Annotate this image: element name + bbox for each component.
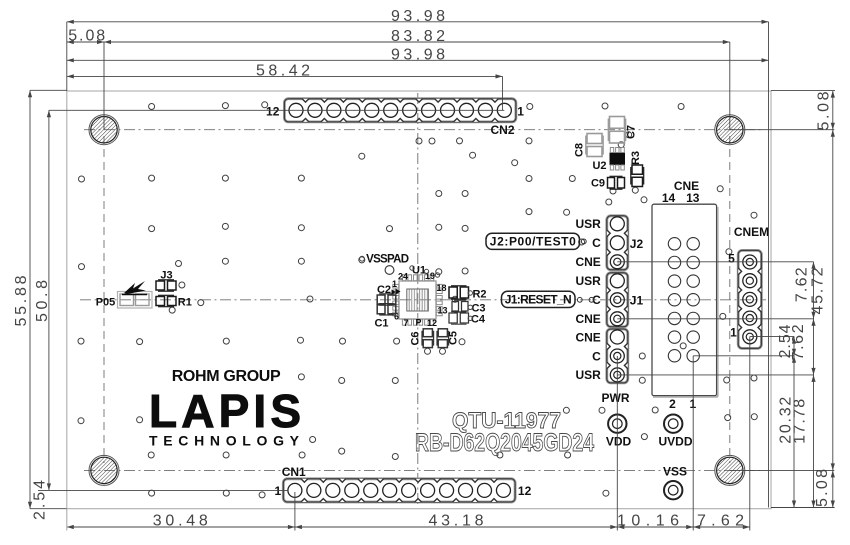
svg-text:13: 13 xyxy=(686,191,700,205)
svg-text:C: C xyxy=(592,236,601,250)
svg-text:R3: R3 xyxy=(630,151,642,165)
svg-text:50.8: 50.8 xyxy=(34,280,51,322)
svg-text:5.08: 5.08 xyxy=(68,27,105,44)
svg-text:CN2: CN2 xyxy=(490,123,514,137)
svg-text:C8: C8 xyxy=(574,143,586,157)
svg-text:J1: J1 xyxy=(630,293,644,307)
svg-text:LAPIS: LAPIS xyxy=(149,385,301,437)
svg-text:12: 12 xyxy=(266,104,280,118)
svg-text:CNE: CNE xyxy=(575,255,600,269)
svg-text:C1: C1 xyxy=(374,318,388,330)
svg-text:C6: C6 xyxy=(410,331,422,345)
svg-text:18: 18 xyxy=(436,283,446,293)
svg-text:1: 1 xyxy=(517,104,524,118)
svg-text:J3: J3 xyxy=(160,270,172,282)
svg-text:U2: U2 xyxy=(592,160,606,172)
svg-text:83.82: 83.82 xyxy=(391,28,445,45)
svg-text:PWR: PWR xyxy=(602,391,630,405)
svg-text:7.62: 7.62 xyxy=(697,513,744,530)
svg-text:J2: J2 xyxy=(630,237,644,251)
svg-text:14: 14 xyxy=(662,191,676,205)
svg-text:24: 24 xyxy=(398,272,408,282)
svg-text:CN1: CN1 xyxy=(282,465,306,479)
svg-text:J2:P00/TEST0: J2:P00/TEST0 xyxy=(490,235,576,249)
svg-text:CNE: CNE xyxy=(575,312,600,326)
svg-text:1: 1 xyxy=(730,326,737,340)
svg-text:20.32: 20.32 xyxy=(778,397,795,444)
svg-text:R2: R2 xyxy=(472,288,486,300)
svg-text:USR: USR xyxy=(575,368,601,382)
svg-text:2.54: 2.54 xyxy=(777,324,794,358)
svg-text:C4: C4 xyxy=(471,314,486,326)
svg-text:C9: C9 xyxy=(591,178,605,190)
svg-text:12: 12 xyxy=(518,484,532,498)
svg-text:5: 5 xyxy=(728,252,735,266)
svg-text:1: 1 xyxy=(392,279,397,289)
svg-text:12: 12 xyxy=(427,318,437,328)
svg-text:CNE: CNE xyxy=(575,330,600,344)
svg-text:43.18: 43.18 xyxy=(429,513,484,530)
svg-text:USR: USR xyxy=(575,274,601,288)
svg-text:ROHM GROUP: ROHM GROUP xyxy=(172,368,281,385)
svg-text:58.42: 58.42 xyxy=(256,63,310,80)
svg-text:30.48: 30.48 xyxy=(153,513,208,530)
svg-text:C5: C5 xyxy=(448,331,460,345)
svg-text:J1:RESET_N: J1:RESET_N xyxy=(505,293,572,307)
svg-text:P: P xyxy=(415,318,421,328)
svg-text:USR: USR xyxy=(575,217,601,231)
svg-text:45.72: 45.72 xyxy=(810,267,827,314)
svg-text:7: 7 xyxy=(403,318,408,328)
svg-text:C7: C7 xyxy=(626,125,638,139)
svg-text:VSSPAD: VSSPAD xyxy=(366,254,409,266)
svg-text:93.98: 93.98 xyxy=(391,47,445,64)
svg-text:RB-D62Q2045GD24: RB-D62Q2045GD24 xyxy=(415,429,594,457)
svg-text:UVDD: UVDD xyxy=(658,435,692,449)
svg-text:R1: R1 xyxy=(178,297,192,309)
svg-text:2: 2 xyxy=(669,397,676,411)
svg-text:VDD: VDD xyxy=(606,435,632,449)
svg-text:7.62: 7.62 xyxy=(793,267,810,302)
svg-text:19: 19 xyxy=(425,271,435,281)
svg-text:55.88: 55.88 xyxy=(13,275,30,326)
svg-text:C: C xyxy=(592,349,601,363)
svg-text:P05: P05 xyxy=(96,297,116,309)
svg-text:VSS: VSS xyxy=(663,464,687,478)
svg-text:2.54: 2.54 xyxy=(31,480,48,520)
svg-text:CNEM: CNEM xyxy=(734,225,769,239)
svg-text:93.98: 93.98 xyxy=(391,8,445,25)
svg-text:5.08: 5.08 xyxy=(814,469,831,507)
svg-text:C2: C2 xyxy=(377,284,391,296)
svg-text:5.08: 5.08 xyxy=(816,91,833,130)
svg-text:13: 13 xyxy=(437,306,447,316)
